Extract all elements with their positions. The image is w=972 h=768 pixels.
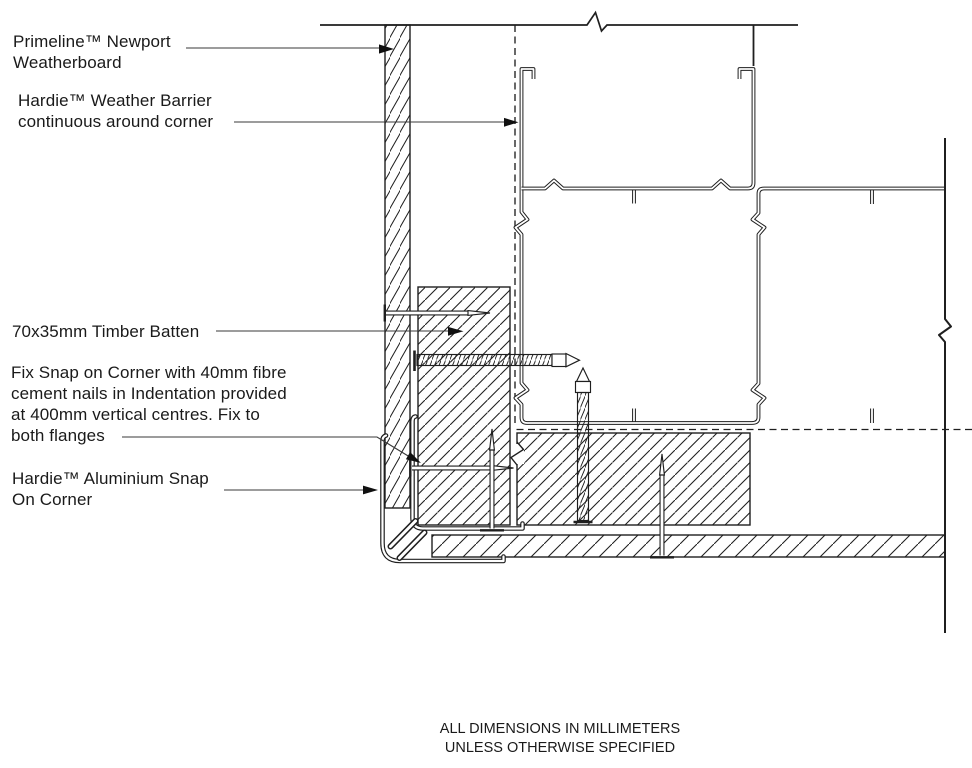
- label-weatherboard: Primeline™ Newport Weatherboard: [13, 31, 171, 73]
- detail-drawing-canvas: Primeline™ Newport Weatherboard Hardie™ …: [0, 0, 972, 768]
- frame-rail: [522, 69, 754, 189]
- label-fixing-note: Fix Snap on Corner with 40mm fibre cemen…: [11, 362, 287, 446]
- weatherboard-bottom-section: [432, 535, 945, 557]
- dimensions-note: ALL DIMENSIONS IN MILLIMETERS UNLESS OTH…: [395, 720, 725, 757]
- timber-batten-left: [418, 287, 510, 525]
- label-timber-batten: 70x35mm Timber Batten: [12, 321, 199, 342]
- arrow-snap-corner: [363, 486, 378, 495]
- label-weather-barrier: Hardie™ Weather Barrier continuous aroun…: [18, 90, 213, 132]
- timber-batten-bottom: [511, 433, 750, 525]
- label-snap-on-corner: Hardie™ Aluminium Snap On Corner: [12, 468, 209, 510]
- weatherboard-left-section: [385, 25, 410, 508]
- arrow-weather-barrier: [504, 118, 519, 127]
- frame-main: [516, 69, 945, 423]
- frame-right-cut: [939, 138, 951, 633]
